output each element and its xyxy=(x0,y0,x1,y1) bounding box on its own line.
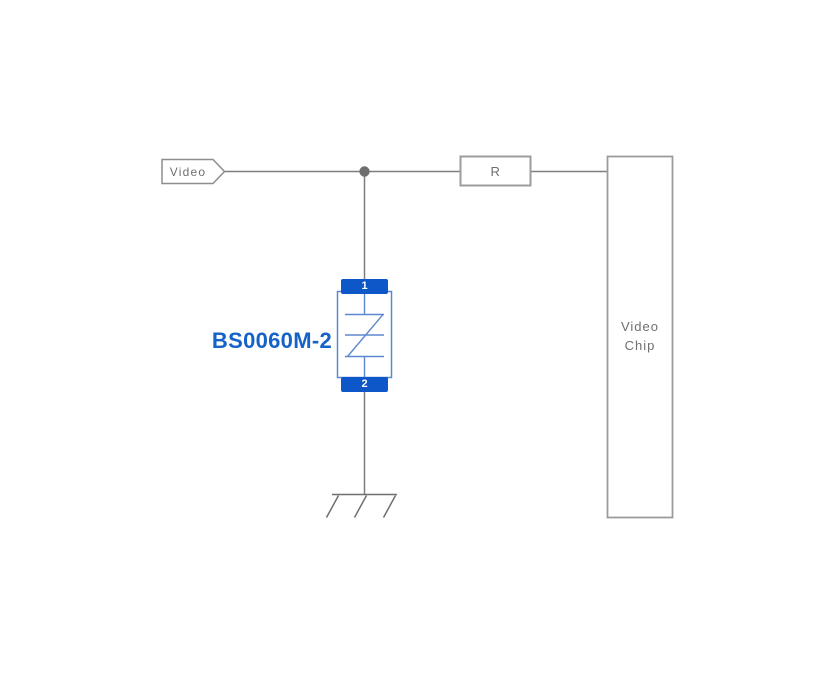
schematic-drawing xyxy=(0,0,832,675)
component-pin2-pad: 2 xyxy=(341,377,388,392)
net-label: Video xyxy=(162,160,214,183)
schematic-canvas: Video R Video Chip BS0060M-2 1 2 xyxy=(0,0,832,675)
component-pin1-pad: 1 xyxy=(341,279,388,294)
junction-dot xyxy=(359,166,369,176)
ground-symbol xyxy=(327,495,398,518)
video-chip-label: Video Chip xyxy=(607,317,673,355)
resistor-label: R xyxy=(460,156,531,186)
part-number-label: BS0060M-2 xyxy=(180,328,332,354)
